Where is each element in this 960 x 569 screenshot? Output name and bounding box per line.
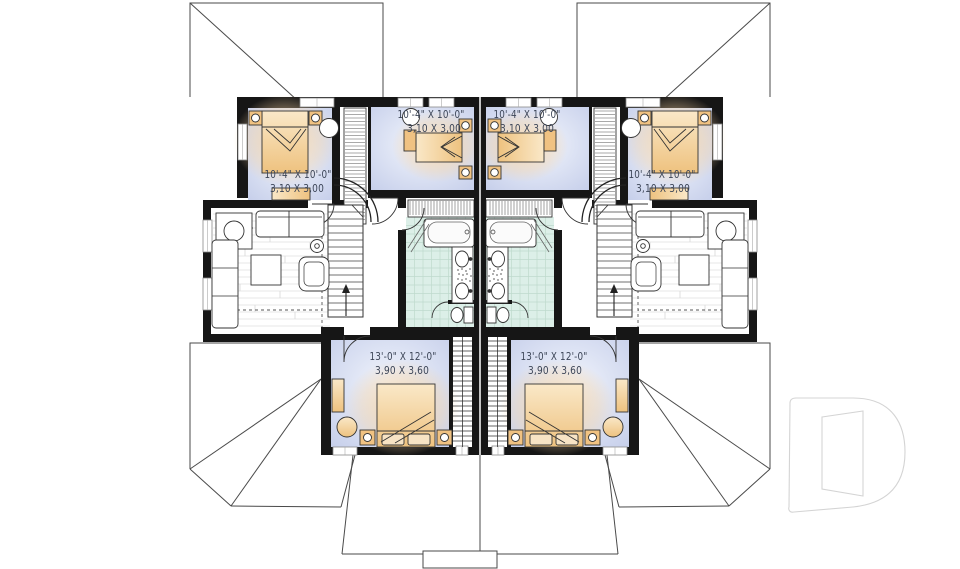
room-dimension-metric: 3,90 X 3,60 [528, 365, 582, 377]
room-dimension-imperial: 13'-0" X 12'-0" [370, 351, 437, 363]
floor-plan-canvas: 10'-4" X 10'-0" 3,10 X 3,00 10'-4" X 10'… [0, 0, 960, 569]
room-dimension-metric: 3,10 X 3,00 [500, 123, 554, 135]
room-dimension-metric: 3,10 X 3,00 [407, 123, 461, 135]
drummond-d-logo [789, 398, 905, 512]
room-dimension-imperial: 10'-4" X 10'-0" [265, 169, 332, 181]
room-dimension-imperial: 10'-4" X 10'-0" [494, 109, 561, 121]
floor-plan-svg: 10'-4" X 10'-0" 3,10 X 3,00 10'-4" X 10'… [0, 0, 960, 569]
party-wall [474, 97, 486, 455]
room-dimension-imperial: 10'-4" X 10'-0" [629, 169, 696, 181]
unit-left [190, 3, 484, 554]
room-dimension-metric: 3,90 X 3,60 [375, 365, 429, 377]
porch-step [423, 551, 497, 568]
room-dimension-metric: 3,10 X 3,00 [636, 183, 690, 195]
unit-right [476, 3, 770, 554]
center-roof-lines [342, 455, 618, 568]
room-dimension-imperial: 10'-4" X 10'-0" [398, 109, 465, 121]
room-dimension-imperial: 13'-0" X 12'-0" [521, 351, 588, 363]
room-dimension-metric: 3,10 X 3,00 [270, 183, 324, 195]
